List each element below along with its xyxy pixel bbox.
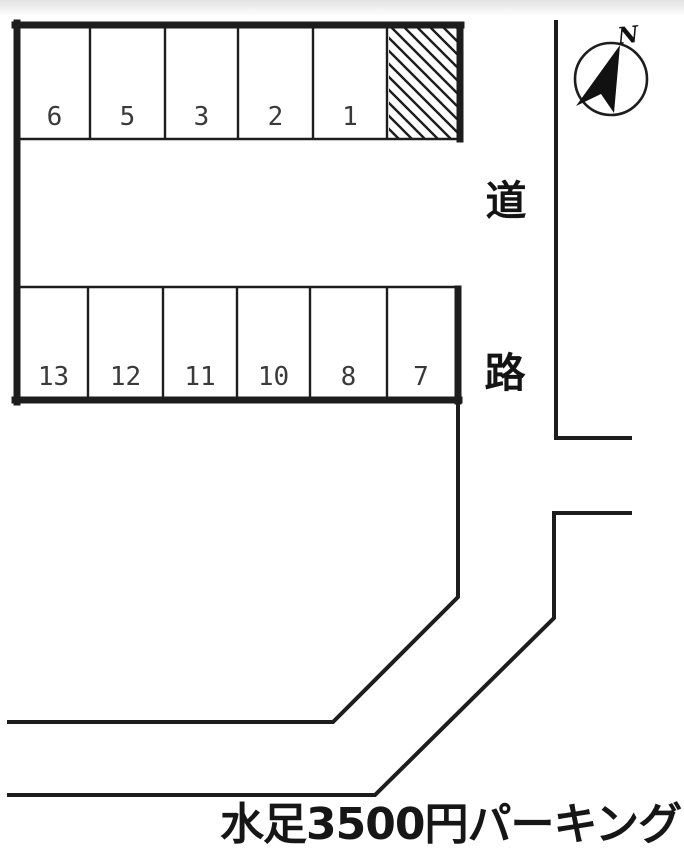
map-title: 水足3500円パーキング xyxy=(220,801,680,849)
road-west-edge xyxy=(9,403,458,722)
road-label-bottom: 路 xyxy=(481,352,529,395)
space-label-5: 5 xyxy=(90,103,165,132)
space-label-2: 2 xyxy=(238,103,313,132)
space-label-12: 12 xyxy=(88,363,163,392)
space-label-7: 7 xyxy=(387,363,455,392)
parking-lot-map: 6 5 3 2 1 13 12 11 10 8 7 道 路 N 水足3500円パ… xyxy=(0,0,684,861)
space-label-13: 13 xyxy=(19,363,88,392)
road-label-top: 道 xyxy=(482,180,530,223)
hatched-stall xyxy=(389,28,458,138)
space-label-6: 6 xyxy=(19,103,90,132)
space-label-11: 11 xyxy=(163,363,237,392)
compass-north-label: N xyxy=(611,20,646,50)
space-label-1: 1 xyxy=(313,103,387,132)
road-east-edge-south xyxy=(9,513,630,795)
north-arrow-compass-icon xyxy=(575,43,647,115)
space-label-10: 10 xyxy=(237,363,310,392)
space-label-3: 3 xyxy=(165,103,238,132)
space-label-8: 8 xyxy=(310,363,387,392)
